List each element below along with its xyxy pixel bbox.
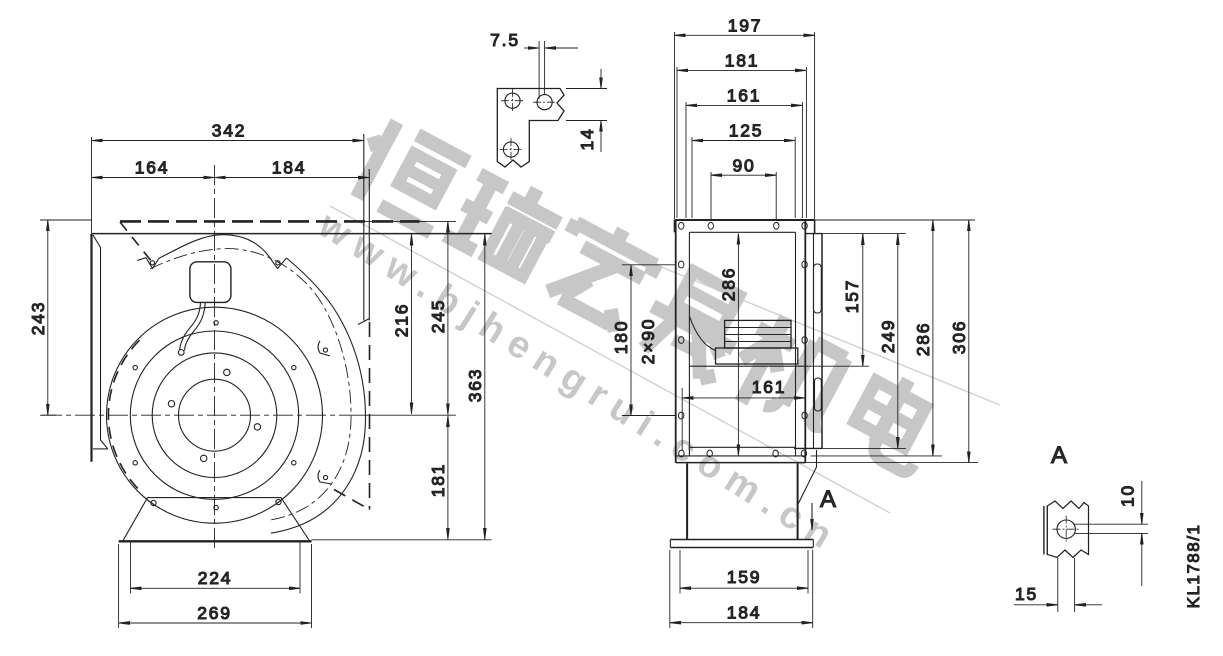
- svg-text:KL1788/1: KL1788/1: [1184, 524, 1203, 609]
- svg-text:342: 342: [212, 121, 247, 141]
- svg-text:125: 125: [729, 121, 764, 141]
- svg-text:224: 224: [198, 568, 233, 588]
- svg-text:161: 161: [727, 86, 762, 106]
- svg-text:197: 197: [728, 16, 763, 36]
- svg-text:A: A: [1051, 442, 1067, 469]
- svg-text:181: 181: [428, 463, 448, 498]
- svg-text:184: 184: [727, 603, 762, 623]
- svg-text:181: 181: [725, 51, 760, 71]
- svg-text:10: 10: [1118, 484, 1138, 507]
- svg-text:A: A: [820, 486, 836, 513]
- svg-text:180: 180: [611, 320, 631, 355]
- svg-text:249: 249: [878, 319, 898, 354]
- svg-text:7.5: 7.5: [490, 30, 520, 50]
- svg-text:245: 245: [428, 299, 448, 334]
- svg-text:159: 159: [727, 567, 762, 587]
- svg-text:363: 363: [465, 368, 485, 403]
- svg-text:306: 306: [949, 320, 969, 355]
- svg-text:216: 216: [392, 303, 412, 338]
- svg-text:2×90: 2×90: [638, 318, 658, 365]
- svg-text:14: 14: [577, 127, 597, 150]
- svg-text:184: 184: [272, 158, 307, 178]
- svg-text:164: 164: [135, 158, 170, 178]
- svg-text:15: 15: [1015, 584, 1038, 604]
- svg-text:286: 286: [719, 267, 739, 302]
- svg-text:157: 157: [842, 279, 862, 314]
- svg-text:286: 286: [913, 322, 933, 357]
- svg-text:269: 269: [197, 603, 232, 623]
- svg-text:90: 90: [732, 156, 755, 176]
- svg-text:161: 161: [752, 377, 787, 397]
- svg-text:243: 243: [28, 301, 48, 336]
